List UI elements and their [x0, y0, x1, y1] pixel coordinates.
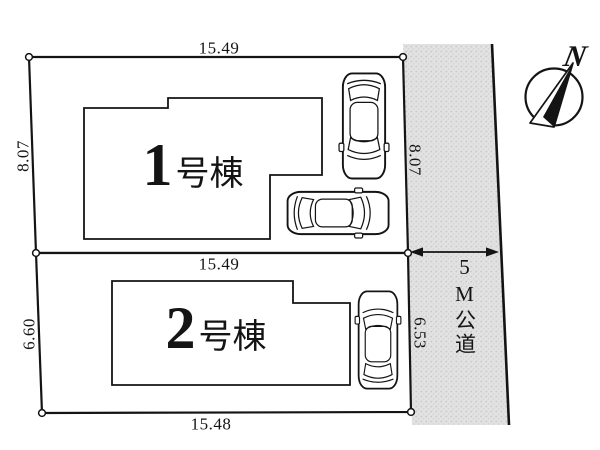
dimension-label-right-upper: 8.07 [407, 144, 424, 176]
dimension-label-right-lower: 6.53 [412, 317, 429, 349]
corner-marker [33, 250, 40, 257]
car-icon [339, 73, 389, 178]
building2-suffix: 号棟 [199, 321, 267, 355]
road-label: 5M公道 [454, 255, 475, 357]
site-plan-drawing [0, 0, 600, 450]
building1-number: 1 [143, 135, 174, 195]
car-icon [355, 291, 401, 388]
corner-marker [405, 250, 412, 257]
dimension-label-lot2-top: 15.49 [199, 256, 240, 273]
dimension-label-left-lower: 6.60 [21, 318, 38, 350]
building2-label: 2 号棟 [166, 298, 267, 358]
corner-marker [39, 410, 46, 417]
corner-marker [408, 409, 415, 416]
road-area [403, 44, 509, 425]
corner-marker [400, 54, 407, 61]
site-plan: 15.49 15.49 15.48 8.07 6.60 8.07 6.53 1 … [0, 0, 600, 450]
corner-marker [26, 54, 33, 61]
dimension-label-lot1-top: 15.49 [199, 40, 240, 57]
building1-label: 1 号棟 [143, 135, 244, 195]
dimension-label-left-upper: 8.07 [15, 140, 32, 172]
building1-suffix: 号棟 [176, 158, 244, 192]
building2-number: 2 [166, 298, 197, 358]
car-icon [288, 188, 389, 238]
dimension-label-lot2-bottom: 15.48 [191, 416, 232, 433]
